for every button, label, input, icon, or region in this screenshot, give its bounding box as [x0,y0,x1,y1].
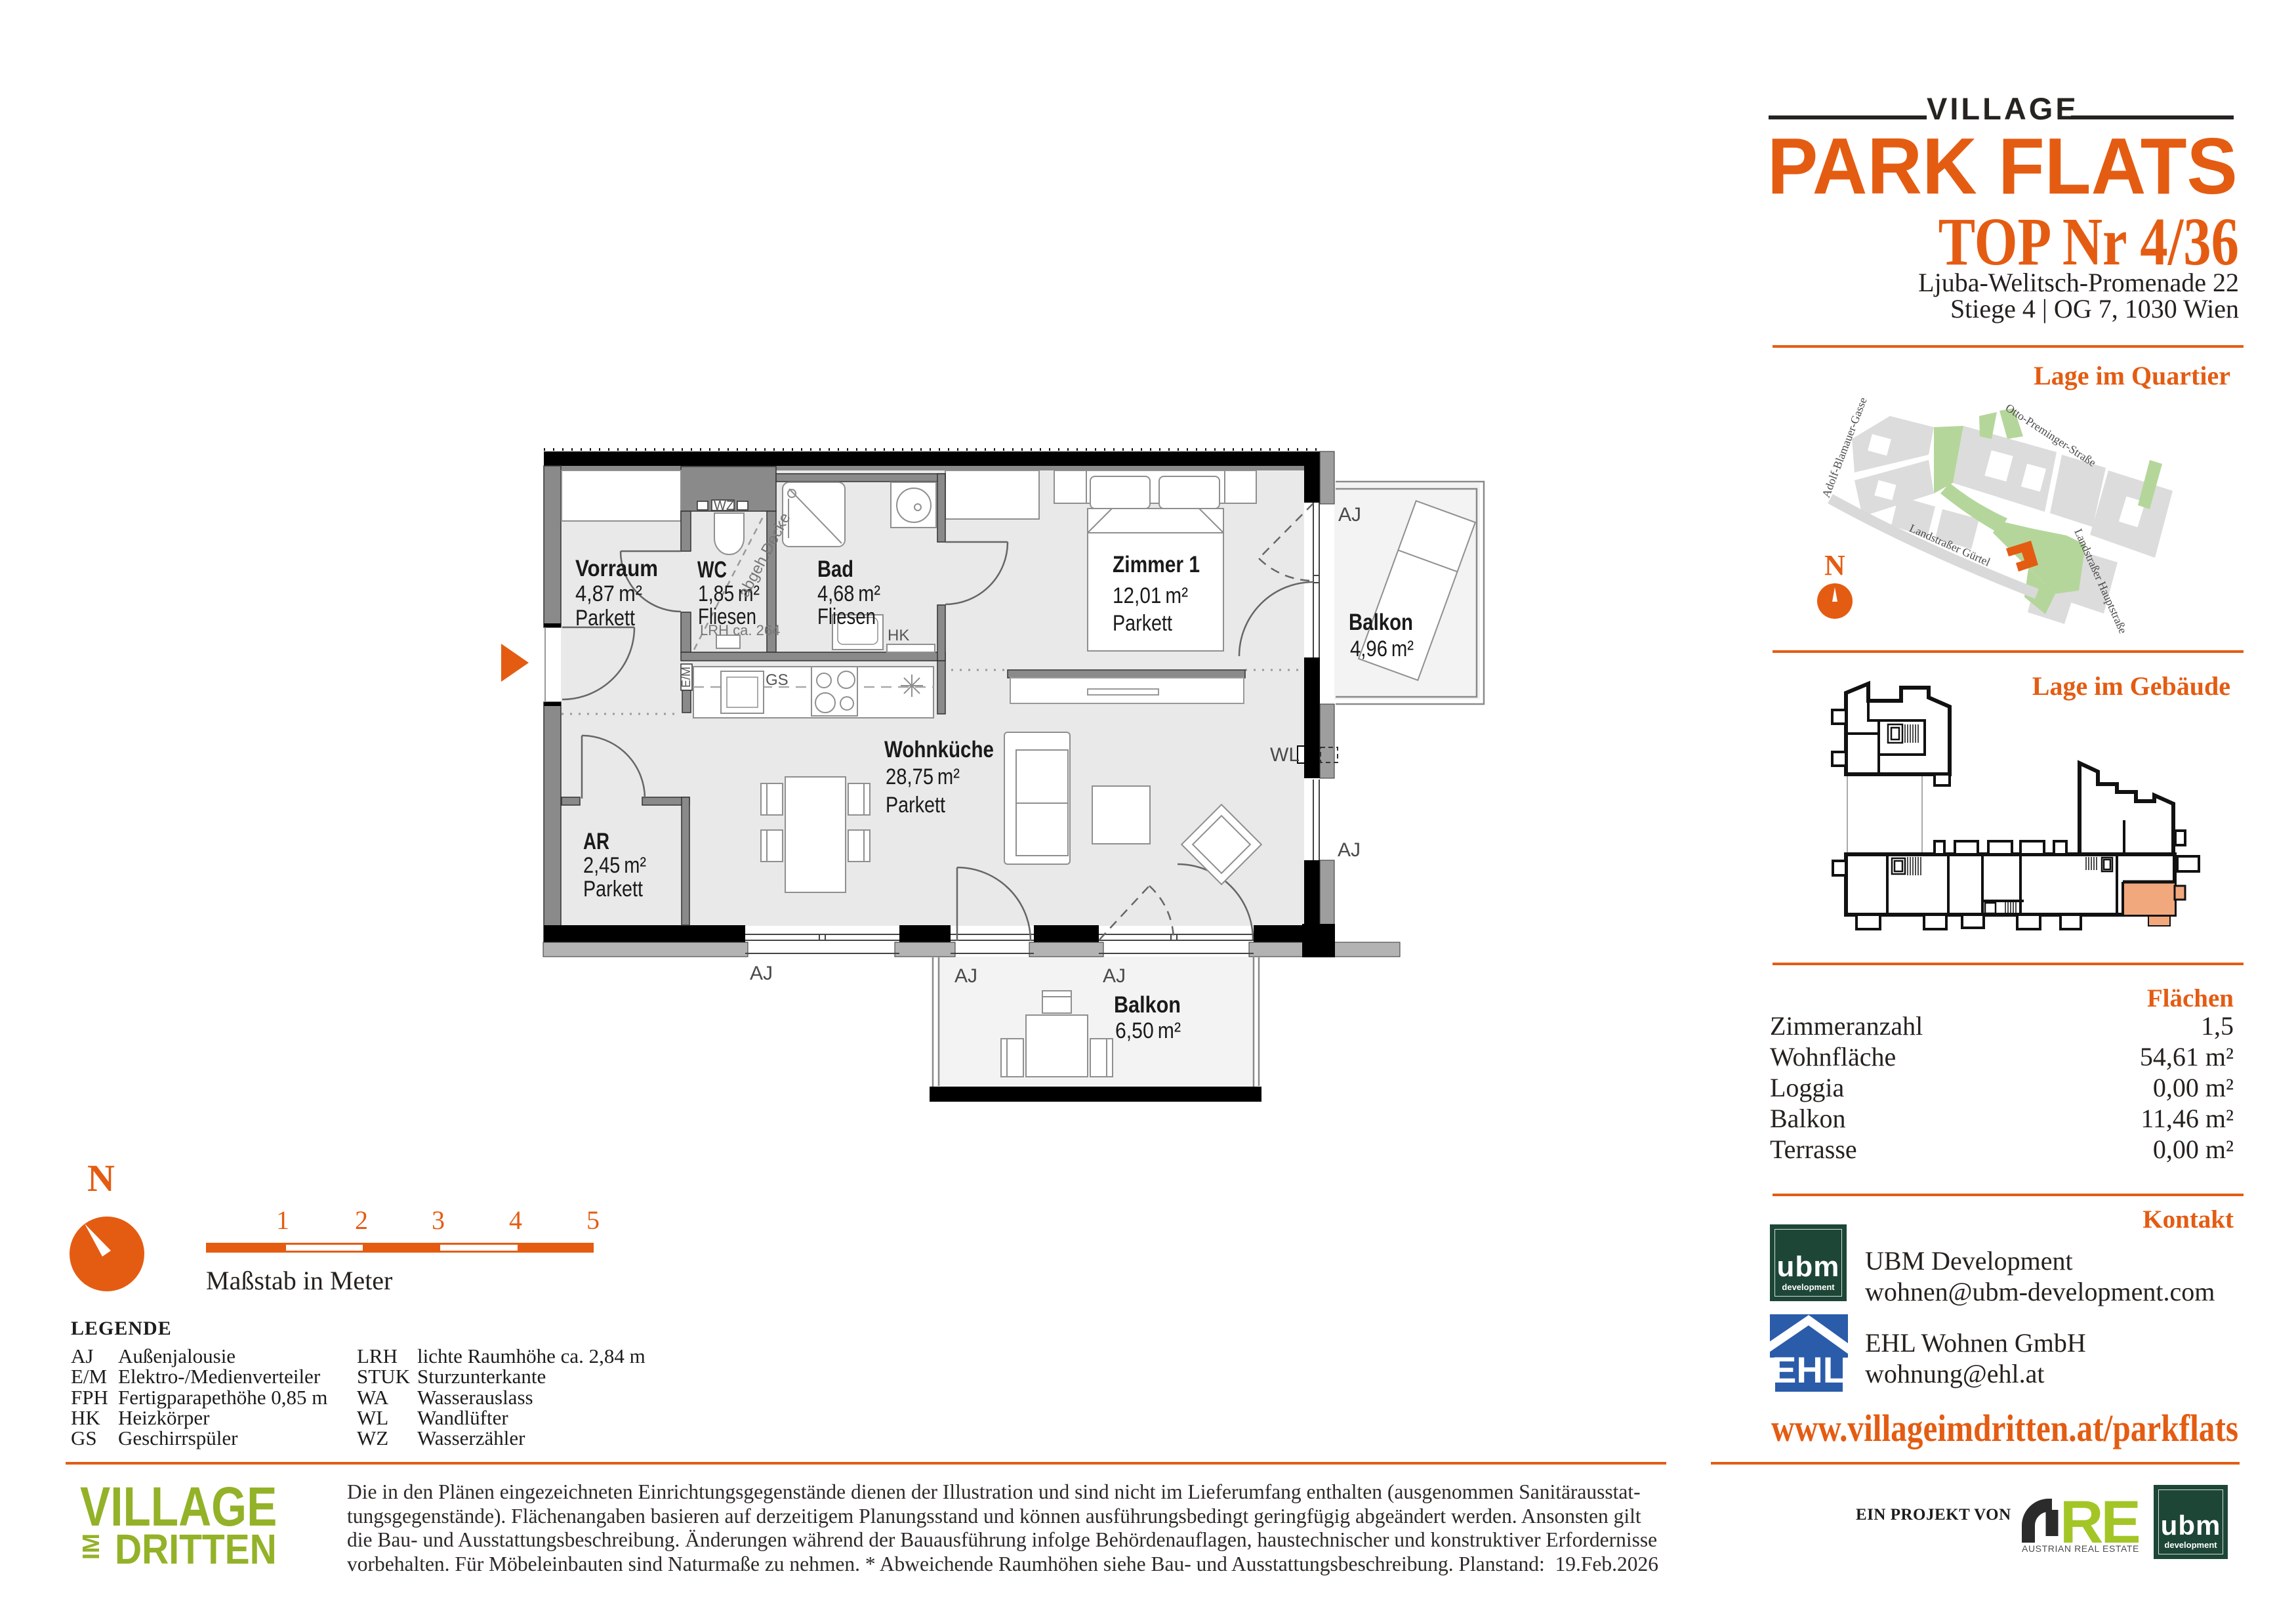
svg-text:AJ: AJ [1338,504,1361,526]
svg-text:Vorraum: Vorraum [575,556,658,581]
svg-text:GS: GS [766,671,789,689]
svg-text:WC: WC [697,557,727,583]
svg-text:WZ: WZ [714,499,734,513]
svg-text:4,87 m²: 4,87 m² [575,581,642,606]
svg-text:4,96 m²: 4,96 m² [1350,636,1414,661]
svg-text:6,50 m²: 6,50 m² [1115,1018,1181,1043]
svg-text:Balkon: Balkon [1349,610,1413,635]
svg-text:Parkett: Parkett [583,877,643,902]
svg-text:AR: AR [583,829,609,854]
svg-text:Parkett: Parkett [1113,611,1172,636]
svg-text:E/M: E/M [680,667,693,688]
svg-text:Bad: Bad [817,556,853,582]
svg-text:Fliesen: Fliesen [817,604,876,629]
svg-text:AJ: AJ [750,963,773,984]
svg-text:N: N [1824,549,1845,581]
svg-text:Parkett: Parkett [575,606,635,631]
svg-text:28,75 m²: 28,75 m² [886,764,960,789]
svg-text:AJ: AJ [1103,965,1126,987]
svg-text:LRH ca. 264: LRH ca. 264 [700,622,780,638]
svg-text:AJ: AJ [954,965,977,987]
svg-text:EHL: EHL [1772,1349,1845,1390]
svg-text:Zimmer 1: Zimmer 1 [1113,552,1200,577]
svg-text:12,01 m²: 12,01 m² [1113,583,1188,608]
svg-text:HK: HK [888,627,909,644]
svg-text:Parkett: Parkett [886,793,945,818]
svg-text:4,68 m²: 4,68 m² [817,581,880,606]
svg-text:2,45 m²: 2,45 m² [583,853,646,878]
svg-text:Balkon: Balkon [1114,992,1181,1018]
svg-text:AJ: AJ [1338,839,1361,861]
svg-text:WL: WL [1270,744,1300,766]
svg-text:Wohnküche: Wohnküche [884,737,994,762]
